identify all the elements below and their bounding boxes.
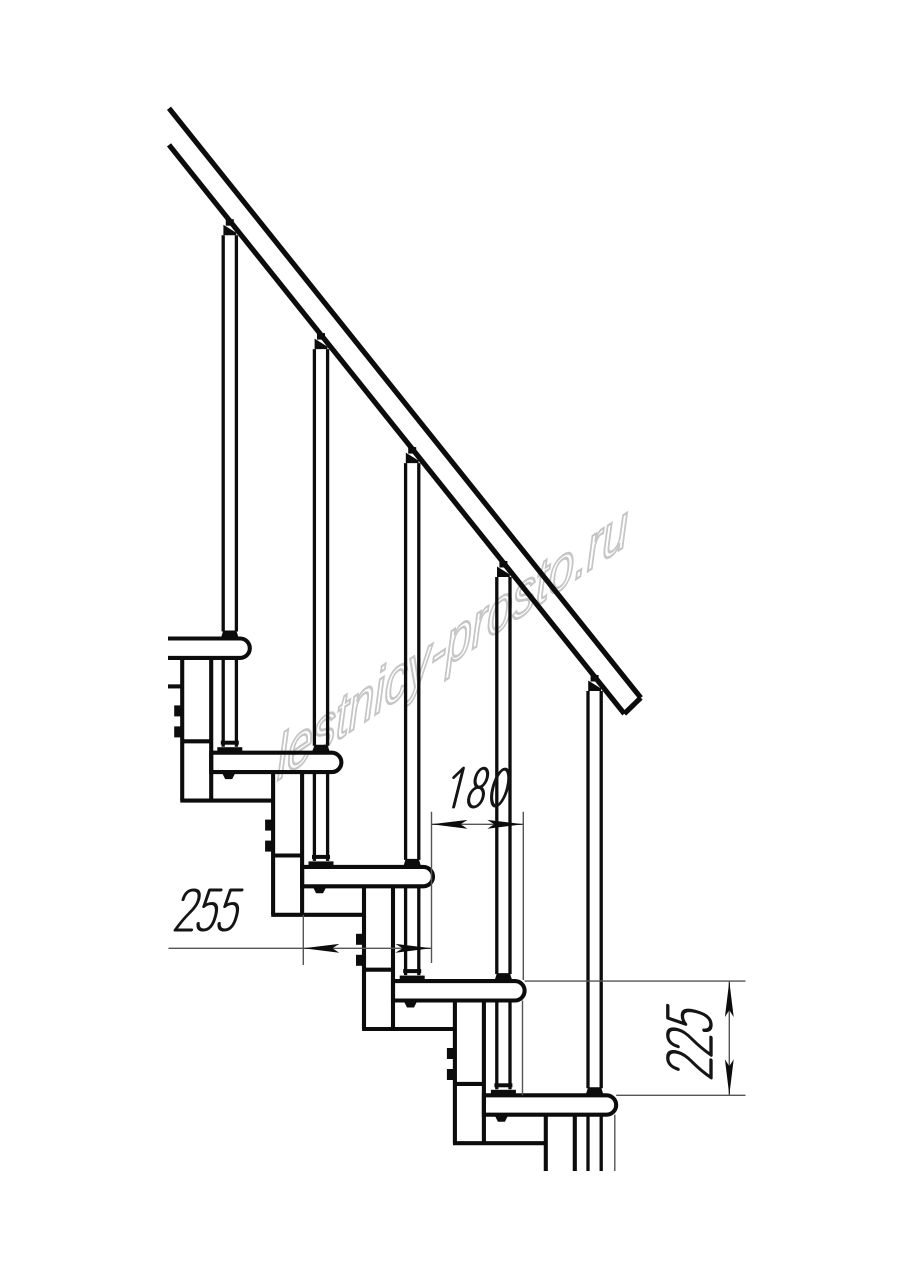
svg-text:lestnicy-prosto.ru: lestnicy-prosto.ru [277,490,628,794]
